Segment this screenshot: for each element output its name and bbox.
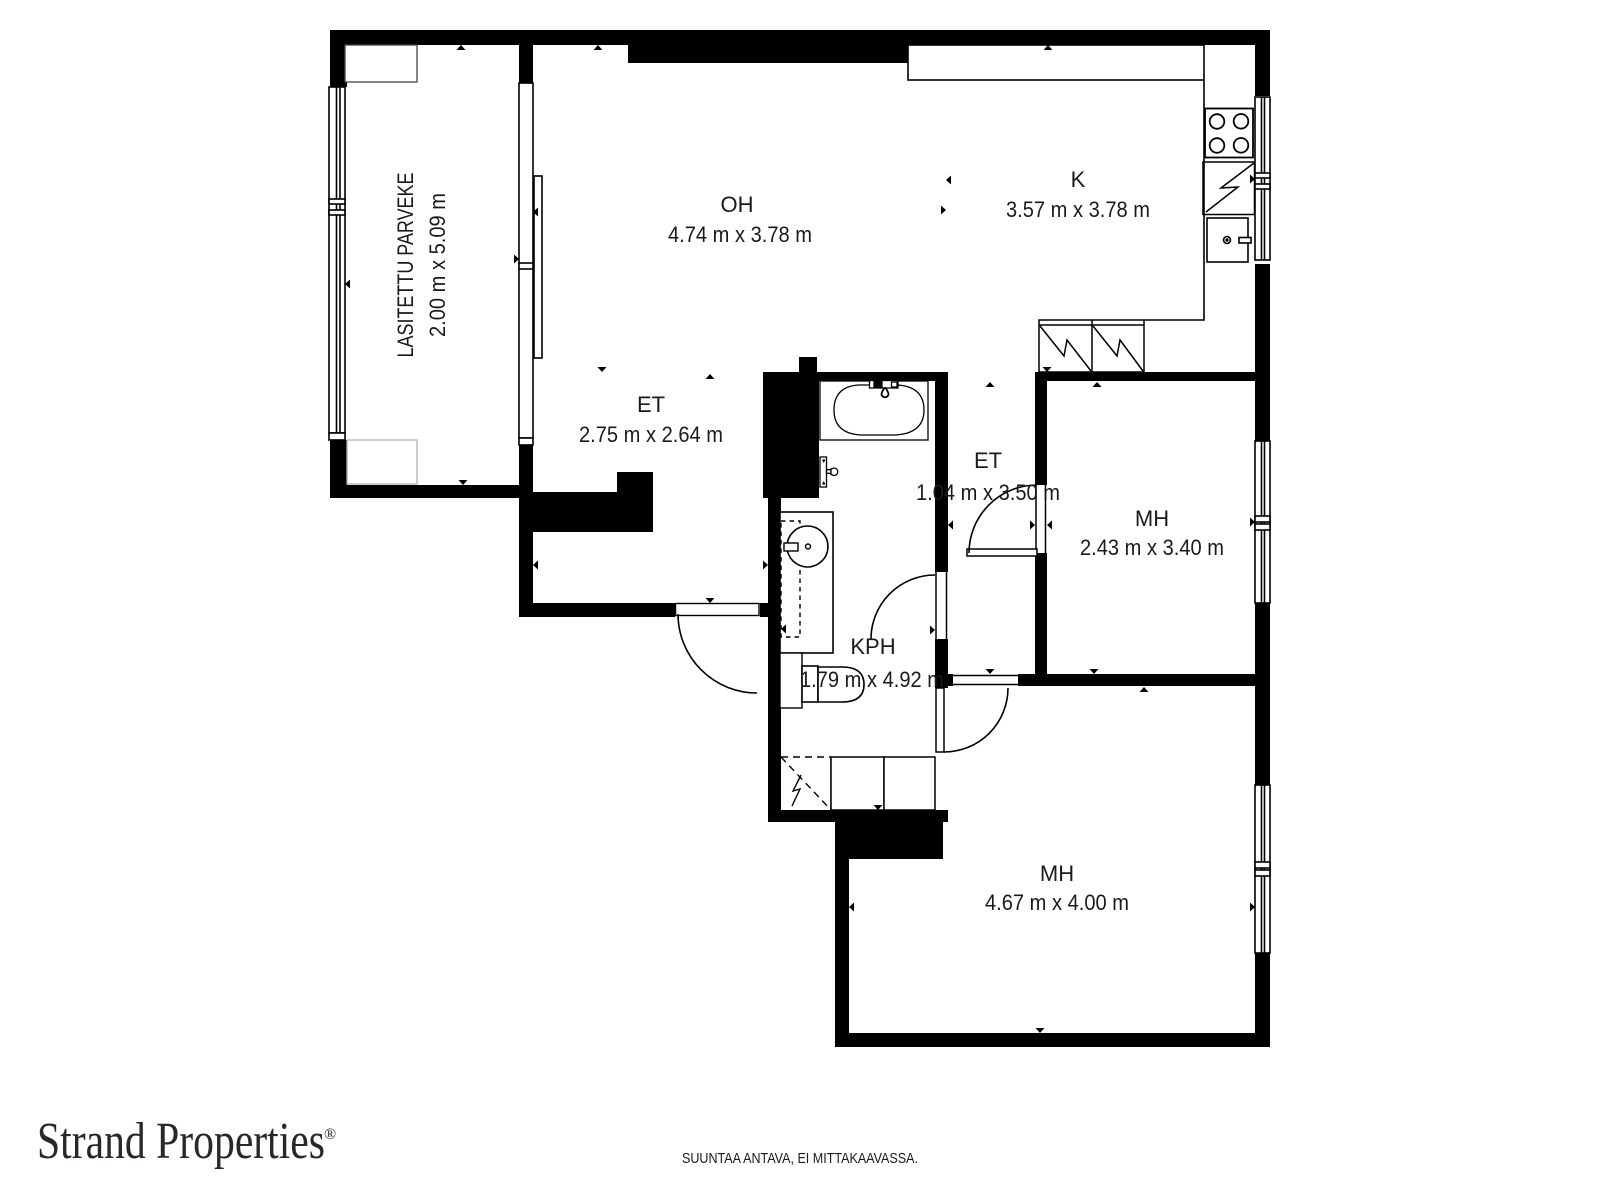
svg-text:K: K <box>1071 167 1086 192</box>
svg-text:KPH: KPH <box>850 634 895 659</box>
svg-text:1.79 m x 4.92 m: 1.79 m x 4.92 m <box>800 667 944 692</box>
svg-text:1.04 m x 3.50 m: 1.04 m x 3.50 m <box>916 480 1060 505</box>
svg-text:2.75 m x 2.64 m: 2.75 m x 2.64 m <box>579 422 723 447</box>
svg-text:LASITETTU PARVEKE: LASITETTU PARVEKE <box>393 173 418 358</box>
svg-text:Strand Properties: Strand Properties <box>37 1113 325 1170</box>
svg-text:ET: ET <box>637 392 665 417</box>
svg-text:®: ® <box>324 1126 336 1143</box>
svg-text:4.67 m x 4.00 m: 4.67 m x 4.00 m <box>985 890 1129 915</box>
svg-text:4.74 m x 3.78 m: 4.74 m x 3.78 m <box>668 222 812 247</box>
svg-text:OH: OH <box>721 192 754 217</box>
svg-text:3.57 m x 3.78 m: 3.57 m x 3.78 m <box>1006 197 1150 222</box>
svg-text:SUUNTAA ANTAVA, EI MITTAKAAVAS: SUUNTAA ANTAVA, EI MITTAKAAVASSA. <box>682 1150 918 1167</box>
svg-text:MH: MH <box>1135 506 1169 531</box>
svg-text:2.43 m x 3.40 m: 2.43 m x 3.40 m <box>1080 535 1224 560</box>
svg-text:ET: ET <box>974 448 1002 473</box>
svg-text:MH: MH <box>1040 861 1074 886</box>
svg-text:2.00 m x 5.09 m: 2.00 m x 5.09 m <box>425 193 450 337</box>
